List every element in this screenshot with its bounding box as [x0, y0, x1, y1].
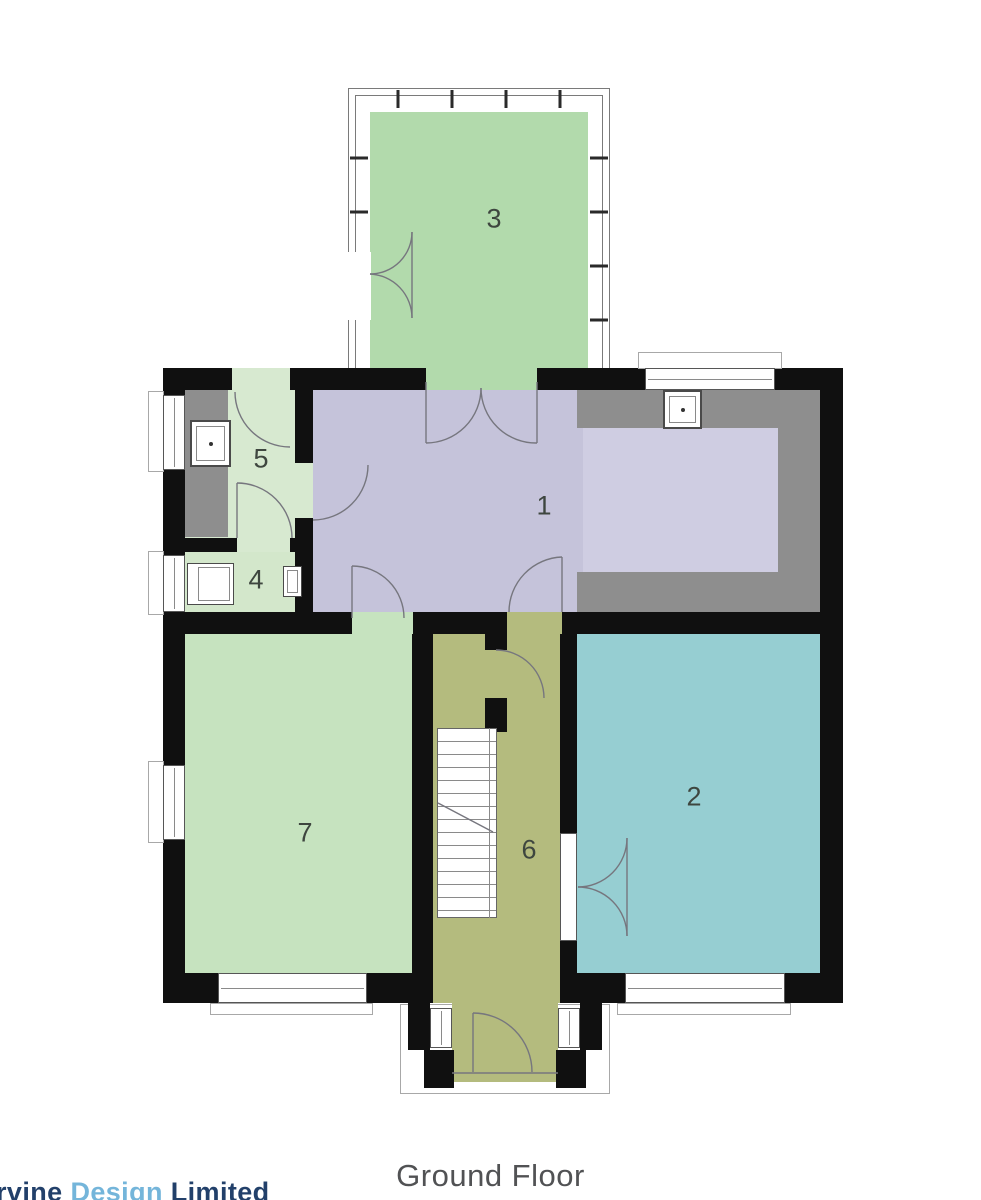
- floor-plan-page: 3 5 4 1 2 6 7 Ground Floor rvine Design …: [0, 0, 981, 1200]
- room-label-2: 2: [686, 782, 701, 813]
- room5-window: [163, 395, 185, 470]
- doorway-room5-room1: [295, 463, 313, 518]
- glazing-line: [648, 379, 772, 380]
- wall-segment: [163, 973, 218, 1003]
- room4-window: [163, 555, 185, 612]
- porch-pier: [424, 1050, 454, 1088]
- glazing-line: [174, 768, 175, 837]
- doorway-backdoor: [232, 368, 290, 390]
- toilet-inner: [287, 570, 298, 593]
- wall-segment: [290, 538, 313, 552]
- wall-segment: [163, 470, 185, 555]
- wall-segment: [185, 538, 237, 552]
- kitchen-floor: [583, 428, 778, 572]
- wall-segment: [290, 368, 426, 390]
- window-sill: [148, 551, 164, 615]
- glazing-line: [628, 988, 782, 989]
- wall-segment: [560, 634, 577, 833]
- wall-segment: [163, 612, 185, 765]
- porch-pier: [556, 1050, 586, 1088]
- porch-sidelight-window: [558, 1008, 580, 1048]
- room-7-floor: [185, 634, 412, 973]
- wall-segment: [412, 634, 433, 1003]
- doorway-room5-room4: [237, 538, 290, 552]
- room2-front-window: [625, 973, 785, 1003]
- doorway-room1-room7: [352, 612, 413, 634]
- room2-door-frame: [560, 833, 577, 941]
- wall-segment: [537, 368, 645, 390]
- toilet-fixture: [283, 566, 302, 597]
- wall-segment: [562, 612, 820, 634]
- glazing-line: [221, 988, 364, 989]
- wall-segment: [485, 698, 507, 732]
- conservatory-door-opening: [346, 252, 371, 320]
- kitchen-window: [645, 368, 775, 390]
- stairs: [437, 728, 497, 918]
- bath-inner: [198, 567, 230, 601]
- room-label-6: 6: [521, 835, 536, 866]
- sink-drain-dot: [209, 442, 213, 446]
- wall-segment: [560, 940, 577, 1003]
- wall-segment: [185, 612, 352, 634]
- doorway-room1-hall: [507, 612, 562, 634]
- glazing-line: [569, 1011, 570, 1045]
- logo-text-limited: Limited: [163, 1177, 270, 1200]
- window-sill: [148, 761, 164, 843]
- kitchen-sink: [663, 390, 702, 429]
- porch-pier: [580, 1003, 602, 1050]
- wall-segment: [785, 973, 843, 1003]
- doorway-room3-room1: [426, 368, 537, 390]
- glazing-line: [174, 558, 175, 609]
- room-label-4: 4: [248, 565, 263, 596]
- porch-pier: [408, 1003, 430, 1050]
- bath-fixture: [187, 563, 234, 605]
- company-logo: rvine Design Limited: [0, 1177, 270, 1200]
- utility-sink: [190, 420, 231, 467]
- logo-text-irvine: rvine: [0, 1177, 70, 1200]
- stair-stringer-line: [489, 728, 490, 918]
- wall-segment: [485, 612, 507, 650]
- window-sill: [617, 1003, 791, 1015]
- porch-floor: [452, 1003, 558, 1082]
- logo-text-design: Design: [70, 1177, 162, 1200]
- room-label-5: 5: [253, 444, 268, 475]
- room-3-floor: [370, 112, 588, 368]
- kitchen-counter-bottom: [577, 572, 820, 612]
- room-label-1: 1: [536, 491, 551, 522]
- wall-segment: [295, 390, 313, 463]
- room-label-3: 3: [486, 204, 501, 235]
- window-sill: [210, 1003, 373, 1015]
- window-sill: [148, 391, 164, 472]
- wall-segment: [820, 368, 843, 1003]
- wall-segment: [163, 368, 185, 395]
- wall-segment: [295, 518, 313, 612]
- sink-drain-dot: [681, 408, 685, 412]
- glazing-line: [174, 398, 175, 467]
- window-sill: [638, 352, 782, 369]
- porch-sidelight-window: [430, 1008, 452, 1048]
- glazing-line: [441, 1011, 442, 1045]
- room-label-7: 7: [297, 818, 312, 849]
- room7-side-window: [163, 765, 185, 840]
- room7-front-window: [218, 973, 367, 1003]
